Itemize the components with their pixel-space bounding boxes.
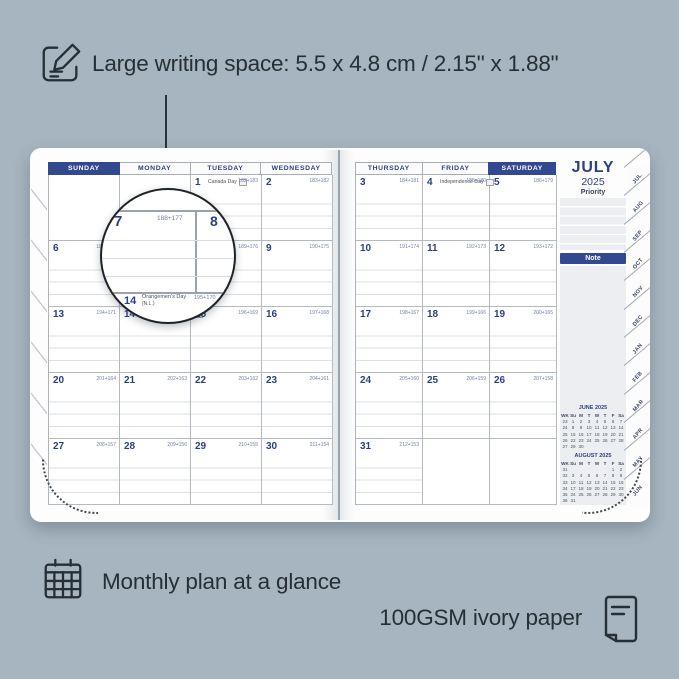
top-annotation-text: Large writing space: 5.5 x 4.8 cm / 2.15… [92,51,558,77]
day-of-year-counts: 203+162 [238,376,258,382]
day-of-year-counts: 184+181 [399,178,419,184]
note-banner: Note [560,253,626,264]
day-of-year-counts: 194+171 [96,310,116,316]
magnified-holiday-line2: (N.L.) [142,301,155,308]
day-number: 29 [195,441,206,452]
calendar-day-cell: 17 198+167 [356,307,423,373]
calendar-day-cell: 15 196+169 [191,307,262,373]
day-of-year-counts: 211+154 [310,442,329,448]
day-header: SATURDAY [488,162,556,175]
month-tab: OCT [628,251,650,279]
calendar-day-cell: 2 183+182 [262,175,333,241]
day-of-year-counts: 197+168 [309,310,329,316]
day-of-year-counts: 206+159 [466,376,486,382]
day-header: TUESDAY [190,162,262,175]
calendar-day-cell: 9 190+175 [262,241,333,307]
mini-day: 29 [569,444,577,450]
mini-calendar-june: JUNE 2025 WKSuMTWTFSa 231234567 24891011… [561,405,625,450]
day-number: 21 [124,375,135,386]
magnified-sub-day: 14 [124,295,136,307]
week-number: 27 [561,444,569,450]
calendar-day-cell: 11 192+173 [423,241,490,307]
day-of-year-counts: 191+174 [399,244,419,250]
mini-calendar-week-row: 272930 [561,444,625,450]
day-of-year-counts: 193+172 [533,244,553,250]
day-of-year-counts: 189+176 [238,244,258,250]
calendar-day-cell: 20 201+164 [49,373,120,439]
magnified-holiday-line1: Orangemen's Day [142,294,186,301]
calendar-day-cell: 12 193+172 [490,241,557,307]
day-header: THURSDAY [355,162,423,175]
mini-day [601,444,609,450]
day-number: 12 [494,243,505,254]
mini-day [593,444,601,450]
calendar-day-cell: 28 209+156 [120,439,191,505]
magnified-cell-top-border [102,210,234,212]
day-header: MONDAY [119,162,191,175]
calendar-day-cell: 21 202+163 [120,373,191,439]
holiday-text: Canada Day [208,179,237,185]
day-header: SUNDAY [48,162,120,175]
month-tab: JUL [628,166,650,194]
day-number: 20 [53,375,64,386]
calendar-day-cell: 16 197+168 [262,307,333,373]
calendar-day-cell: 18 199+166 [423,307,490,373]
day-number: 2 [266,177,272,188]
paper-annotation-text: 100GSM ivory paper [379,605,582,631]
day-of-year-counts: 207+158 [533,376,553,382]
day-number: 28 [124,441,135,452]
sidebar-year: 2025 [558,176,628,188]
left-page-day-headers: SUNDAYMONDAYTUESDAYWEDNESDAY [48,162,332,175]
day-of-year-counts: 208+157 [96,442,116,448]
month-tab: JAN [628,336,650,364]
day-of-year-counts: 204+161 [309,376,329,382]
day-of-year-counts: 186+179 [533,178,553,184]
day-of-year-counts: 196+169 [238,310,258,316]
day-of-year-counts: 205+160 [399,376,419,382]
day-number: 19 [494,309,505,320]
day-number: 31 [360,441,371,452]
stitch-arc-right [582,458,644,516]
stitch-arc-left [36,458,98,516]
calendar-day-cell: 3 184+181 [356,175,423,241]
day-number: 4 [427,177,433,188]
magnified-sub-counts: 195+170 [194,295,216,301]
day-number: 6 [53,243,59,254]
calendar-day-cell [490,439,557,505]
day-number: 18 [427,309,438,320]
calendar-day-cell: 29 210+155 [191,439,262,505]
day-of-year-counts: 202+163 [167,376,187,382]
day-number: 13 [53,309,64,320]
month-index-tabs: JUL AUG SEP OCT NOV DEC JAN FEB MAR APR … [628,166,650,506]
mini-calendar-title: JUNE 2025 [561,405,625,411]
magnified-rule-line [102,276,234,277]
magnified-day-counts: 188+177 [157,215,183,222]
calendar-day-cell: 22 203+162 [191,373,262,439]
calendar-day-cell: 31 212+153 [356,439,423,505]
paper-sheet-icon [598,591,642,652]
calendar-day-cell: 4 Independence Day 185+180 [423,175,490,241]
day-number: 11 [427,243,438,254]
day-number: 1 [195,177,201,188]
day-of-year-counts: 190+175 [309,244,329,250]
calendar-day-cell: 25 206+159 [423,373,490,439]
day-number: 30 [266,441,277,452]
magnified-column-divider [195,210,197,292]
day-of-year-counts: 183+182 [309,178,329,184]
day-number: 16 [266,309,277,320]
mini-calendar-rows: 231234567 24891011121314 251516171819202… [561,419,625,450]
day-number: 25 [427,375,438,386]
day-number: 5 [494,177,500,188]
page-seam [338,150,340,520]
day-number: 3 [360,177,366,188]
day-number: 23 [266,375,277,386]
day-number: 24 [360,375,371,386]
calendar-grid-icon [40,557,86,608]
day-number: 22 [195,375,206,386]
day-number: 26 [494,375,505,386]
day-number: 10 [360,243,371,254]
magnified-rule-line [102,258,234,259]
magnified-day-number: 7 [114,213,122,230]
right-page-calendar-grid: 3 184+181 4 Independence Day 185+180 5 1… [355,175,557,505]
month-tab: APR [628,421,650,449]
calendar-day-cell: 13 194+171 [49,307,120,373]
calendar-day-cell: 19 200+165 [490,307,557,373]
monthly-annotation-text: Monthly plan at a glance [102,569,341,595]
calendar-day-cell: 24 205+160 [356,373,423,439]
mini-day: 30 [577,444,585,450]
calendar-day-cell: 23 204+161 [262,373,333,439]
day-of-year-counts: 192+173 [466,244,486,250]
day-of-year-counts: 209+156 [167,442,187,448]
day-of-year-counts: 199+166 [466,310,486,316]
day-number: 9 [266,243,272,254]
spine-shadow-right [340,150,354,520]
week-number: 36 [561,498,569,504]
day-of-year-counts: 182+183 [238,178,258,184]
magnified-neighbor-day: 8 [210,213,218,229]
page-edge-hatching [31,172,47,494]
calendar-day-cell: 5 186+179 [490,175,557,241]
day-of-year-counts: 200+165 [533,310,553,316]
day-header: WEDNESDAY [260,162,332,175]
mini-day [585,444,593,450]
flag-icon [486,179,494,186]
day-of-year-counts: 212+153 [399,442,419,448]
calendar-day-cell: 26 207+158 [490,373,557,439]
right-page-day-headers: THURSDAYFRIDAYSATURDAY [355,162,556,175]
magnifier-circle: 7 188+177 8 14 Orangemen's Day (N.L.) 19… [100,188,236,324]
calendar-day-cell [423,439,490,505]
calendar-day-cell: 30 211+154 [262,439,333,505]
day-number: 27 [53,441,64,452]
sidebar-month-title: JULY [558,159,628,177]
calendar-day-cell: 10 191+174 [356,241,423,307]
day-of-year-counts: 185+180 [466,178,486,184]
day-header: FRIDAY [422,162,490,175]
priority-label: Priority [558,189,628,196]
mini-day [609,444,617,450]
priority-lined-box [560,198,626,250]
magnified-rule-line [102,240,234,241]
mini-day: 31 [569,498,577,504]
planner-product-image: { "colors":{"background":"#a6b5bf","navy… [0,0,679,679]
pencil-note-icon [38,40,84,91]
day-of-year-counts: 198+167 [399,310,419,316]
day-of-year-counts: 210+155 [238,442,258,448]
day-of-year-counts: 201+164 [96,376,116,382]
day-number: 17 [360,309,371,320]
